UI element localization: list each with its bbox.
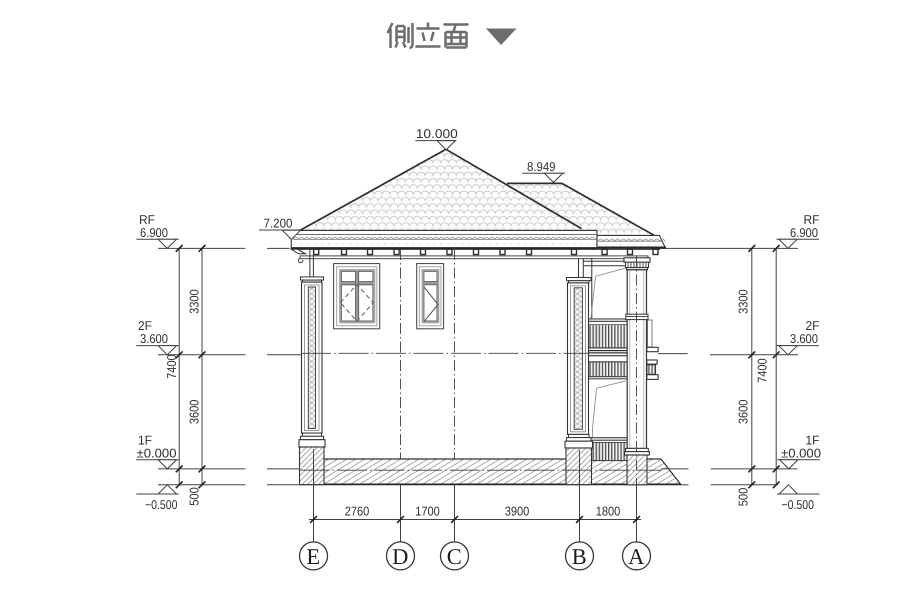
- svg-text:2760: 2760: [345, 504, 370, 519]
- svg-text:E: E: [306, 544, 320, 569]
- svg-text:10.000: 10.000: [416, 126, 458, 141]
- svg-text:500: 500: [736, 488, 751, 507]
- svg-text:3600: 3600: [736, 400, 751, 425]
- svg-text:B: B: [572, 544, 587, 569]
- svg-text:−0.500: −0.500: [782, 497, 815, 512]
- svg-text:7.200: 7.200: [264, 216, 293, 231]
- svg-text:7400: 7400: [755, 358, 770, 383]
- svg-text:±0.000: ±0.000: [137, 445, 177, 460]
- svg-text:2F: 2F: [806, 318, 820, 333]
- svg-text:500: 500: [187, 487, 202, 506]
- svg-text:RF: RF: [804, 212, 820, 227]
- svg-text:3600: 3600: [187, 400, 202, 425]
- svg-text:A: A: [628, 544, 645, 569]
- svg-text:3.600: 3.600: [140, 331, 168, 346]
- svg-text:3300: 3300: [736, 289, 751, 314]
- svg-text:3900: 3900: [505, 504, 530, 519]
- svg-text:D: D: [392, 544, 408, 569]
- svg-text:6.900: 6.900: [140, 225, 168, 240]
- svg-text:7400: 7400: [164, 354, 179, 379]
- svg-text:2F: 2F: [138, 318, 152, 333]
- svg-text:3300: 3300: [187, 289, 202, 314]
- svg-text:6.900: 6.900: [790, 225, 818, 240]
- svg-text:±0.000: ±0.000: [781, 445, 821, 460]
- svg-text:1F: 1F: [806, 432, 820, 447]
- svg-text:1F: 1F: [138, 432, 152, 447]
- svg-text:3.600: 3.600: [790, 331, 818, 346]
- svg-text:8.949: 8.949: [527, 159, 556, 174]
- svg-text:C: C: [447, 544, 462, 569]
- svg-text:1800: 1800: [596, 504, 621, 519]
- svg-text:1700: 1700: [415, 504, 440, 519]
- svg-text:RF: RF: [139, 212, 155, 227]
- svg-text:−0.500: −0.500: [145, 497, 178, 512]
